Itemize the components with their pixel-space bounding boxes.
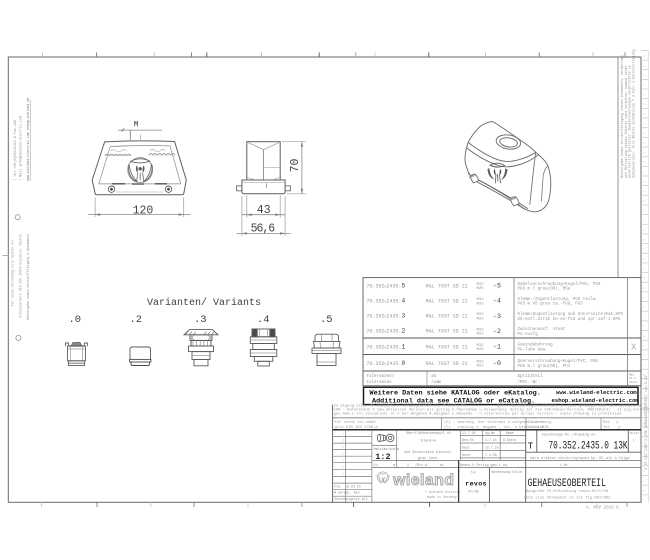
svg-text:M25: M25 <box>477 365 485 369</box>
svg-text:/±mm: /±mm <box>431 380 442 385</box>
svg-text:+0: +0 <box>493 360 501 367</box>
svg-text:.0: .0 <box>69 314 82 326</box>
svg-text:PG5 m.l grau(DB), M5a: PG5 m.l grau(DB), M5a <box>518 287 571 292</box>
svg-text:www.wieland-electric.com: www.wieland-electric.com <box>556 389 637 396</box>
svg-text:Gepr.: Gepr. <box>462 445 472 449</box>
svg-text:M25: M25 <box>477 317 485 321</box>
svg-text:56,6: 56,6 <box>251 222 276 235</box>
svg-text:M25: M25 <box>477 287 485 291</box>
svg-text:+2: +2 <box>493 328 501 335</box>
svg-text:RO/NE: RO/NE <box>468 490 479 495</box>
svg-text:12.7.18: 12.7.18 <box>485 445 498 449</box>
svg-text:Klemm+Zugentlastung und Unters: Klemm+Zugentlastung und Unterseite+Kab.K… <box>518 312 624 317</box>
svg-text:RAL 7037 SD 21: RAL 7037 SD 21 <box>426 283 468 289</box>
svg-text:Bea.5%: Bea.5% <box>462 438 474 442</box>
svg-text:og/dm: og/dm <box>485 431 495 435</box>
svg-text:Für nicht tol.maße: Für nicht tol.maße <box>335 420 377 425</box>
svg-text:RAL 7037 SD 21: RAL 7037 SD 21 <box>426 299 468 305</box>
svg-text:A. MAP 2019.8: A. MAP 2019.8 <box>586 507 619 511</box>
svg-text:made in Germany: made in Germany <box>427 495 457 499</box>
svg-text:/Mst.-Nr.: /Mst.-Nr. <box>518 380 541 385</box>
svg-text:blatt: blatt <box>629 380 638 384</box>
svg-text:Zwischenausf. steat: Zwischenausf. steat <box>518 327 566 332</box>
svg-text:Maß: Maß <box>629 373 634 377</box>
svg-text:Schadenersatz. Alle Rechte vor: Schadenersatz. Alle Rechte vorbehalten f… <box>631 49 635 178</box>
svg-text:Klemm-/Zugentlastung, PG5 teil: Klemm-/Zugentlastung, PG5 teilw. <box>518 297 598 302</box>
svg-text:gez.Abm.u.Tol.situation, st.n.: gez.Abm.u.Tol.situation, st.n.ber.Angabe… <box>334 411 505 416</box>
svg-text:.2: .2 <box>130 314 143 326</box>
svg-text:±5: ±5 <box>431 375 437 379</box>
svg-text:Maßstab/scale: Maßstab/scale <box>374 447 400 451</box>
svg-text:7.n.58: 7.n.58 <box>485 453 497 457</box>
svg-text:Hood size 76+Gasket as set fig: Hood size 76+Gasket as set fig-HD1/HD2 <box>524 495 611 500</box>
svg-text:1:2: 1:2 <box>375 452 390 462</box>
svg-text:70.35252435.4: 70.35252435.4 <box>367 298 406 305</box>
svg-text:+1: +1 <box>493 344 501 351</box>
svg-text:Benennung/title: Benennung/title <box>492 470 523 475</box>
svg-text:und Schutzlack einseit.: und Schutzlack einseit. <box>404 450 454 455</box>
svg-text:70.35252435.3: 70.35252435.3 <box>367 313 406 320</box>
svg-text:Norm: Norm <box>462 453 470 457</box>
svg-text:+4: +4 <box>493 298 501 305</box>
svg-text:4.70.352.2435.0-13K GEHAEUSEOB: 4.70.352.2435.0-13K GEHAEUSEOBERTEIL rev… <box>644 375 649 470</box>
svg-text:M25: M25 <box>477 302 485 306</box>
svg-text:RAL 7037 SD 21: RAL 7037 SD 21 <box>426 344 468 350</box>
svg-text:70.35252435.5: 70.35252435.5 <box>367 282 406 289</box>
svg-text:ZG-entl.Strab be-an-fed und op: ZG-entl.Strab be-an-fed und opr.saf-1.KP… <box>518 317 622 322</box>
svg-text:+5: +5 <box>493 283 501 290</box>
svg-text:70.35252435.2: 70.35252435.2 <box>367 328 406 335</box>
svg-text:Querverschraubung+Kugel/PVC, P: Querverschraubung+Kugel/PVC, PG6 <box>518 359 599 364</box>
svg-text:.5: .5 <box>320 314 333 326</box>
svg-text:as per actual version - scale: as per actual version - scale drawing is… <box>505 411 621 416</box>
svg-text:RAL 7037 SD 21: RAL 7037 SD 21 <box>426 314 468 320</box>
svg-text:RAL 7037 SD 21: RAL 7037 SD 21 <box>426 361 468 367</box>
svg-text:RAL 7037 SD 21: RAL 7037 SD 21 <box>426 329 468 335</box>
svg-text:M25: M25 <box>477 333 485 337</box>
svg-text:PG6 m.l grau(DB), PG1: PG6 m.l grau(DB), PG1 <box>518 364 571 369</box>
svg-text:70.35252435.0: 70.35252435.0 <box>367 360 406 367</box>
svg-text:X: X <box>631 343 637 353</box>
svg-text:70.352.2435.0 13K: 70.352.2435.0 13K <box>549 441 628 453</box>
svg-text:.3: .3 <box>194 314 207 326</box>
svg-text:W.unregl. Rev.: W.unregl. Rev. <box>334 491 362 495</box>
svg-text:PG-Ausfg: PG-Ausfg <box>518 332 539 337</box>
svg-text:tolerances: tolerances <box>367 380 393 385</box>
svg-text:Rev y: Rev y <box>603 421 619 425</box>
svg-text:Baugröße 76.6+Dichtung revos-H: Baugröße 76.6+Dichtung revos-HD/C/FW <box>526 489 609 494</box>
svg-text:Oberflächenbehandl.st: Oberflächenbehandl.st <box>406 431 451 436</box>
svg-text:12.7.18: 12.7.18 <box>462 431 475 435</box>
svg-text:+3: +3 <box>493 313 501 320</box>
svg-text:wieland: wieland <box>392 472 454 489</box>
svg-text:Toleranzen/: Toleranzen/ <box>367 374 395 379</box>
svg-text:±0.1: ±0.1 <box>629 377 636 380</box>
svg-text:GEHAEUSEOBERTEIL: GEHAEUSEOBERTEIL <box>528 478 607 490</box>
svg-text:M: M <box>134 122 139 130</box>
svg-text:120: 120 <box>133 204 154 217</box>
svg-text:PG-Tube Gew.: PG-Tube Gew. <box>518 348 548 353</box>
svg-text:Schutzvermerk DIN ISO 16016 be: Schutzvermerk DIN ISO 16016 beachten. Re… <box>19 234 23 318</box>
svg-text:Varianten/ Variants: Varianten/ Variants <box>147 297 261 309</box>
svg-text:Weitergabe sowie Vervielfältig: Weitergabe sowie Vervielfältigung d.Doku… <box>26 234 30 320</box>
svg-text:.4: .4 <box>257 314 270 326</box>
svg-text:Fre. 18.03.19: Fre. 18.03.19 <box>334 485 361 489</box>
svg-text:Für diese Zeichnung alle Recht: Für diese Zeichnung alle Rechte vor <box>11 239 15 306</box>
svg-text:PG5 m.45 grau ca.-fed, PG5: PG5 m.45 grau ca.-fed, PG5 <box>518 302 584 307</box>
svg-text:revos: revos <box>465 481 487 488</box>
svg-text:Blatt: Blatt <box>630 431 639 435</box>
svg-text:Zeichnungsrev.alt: Zeichnungsrev.alt <box>334 497 368 501</box>
svg-text:blank+m: blank+m <box>421 438 436 443</box>
svg-text:T wieland electric: T wieland electric <box>425 490 461 494</box>
svg-text:Spritzteil: Spritzteil <box>518 374 544 379</box>
svg-text:T: T <box>528 441 534 452</box>
svg-text:43: 43 <box>257 204 271 217</box>
svg-text:M25: M25 <box>477 348 485 352</box>
svg-text:70.35252435.1: 70.35252435.1 <box>367 343 406 350</box>
svg-text:Druckfreig.:: Druckfreig.: <box>528 420 555 425</box>
svg-text:Gewindebohrung: Gewindebohrung <box>518 343 554 348</box>
svg-text:Name: Name <box>506 431 514 435</box>
svg-text:Kabelverschraubung+Kugel/PVC,: Kabelverschraubung+Kugel/PVC, PG5 <box>518 282 601 287</box>
svg-text:Typ: Typ <box>471 471 477 474</box>
svg-text:A.Dietz: A.Dietz <box>503 438 516 442</box>
svg-text:4.7.18: 4.7.18 <box>485 438 497 442</box>
svg-text:70: 70 <box>289 159 302 173</box>
svg-text:eshop.wieland-electric.com: eshop.wieland-electric.com <box>552 397 640 404</box>
svg-text:Zeichnungs-Nr./drawing no.: Zeichnungs-Nr./drawing no. <box>542 433 598 438</box>
